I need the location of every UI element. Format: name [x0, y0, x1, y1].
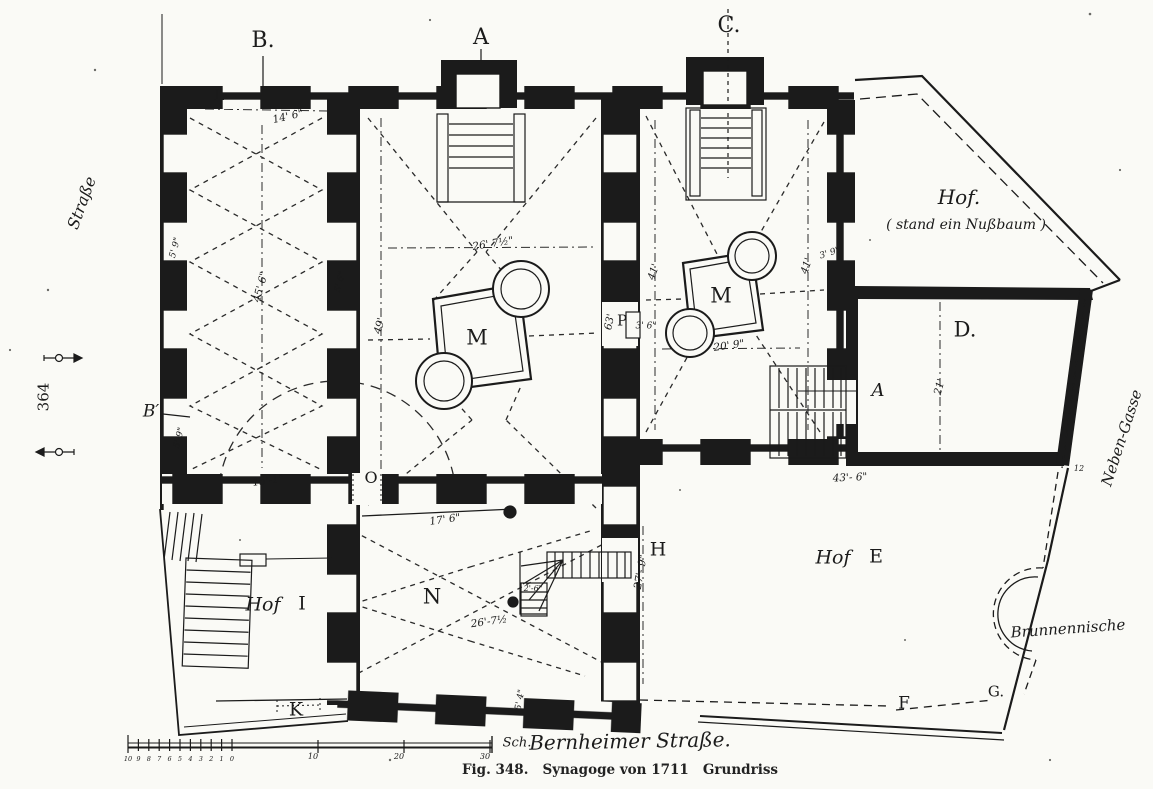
- scale-tick-label: 30: [480, 752, 490, 761]
- room-d-walls: [846, 286, 1093, 466]
- central-wall: [601, 95, 640, 720]
- scanned-book-page: 109876543210102030 B.AC.LONMMD.HKFG.PB′H…: [0, 0, 1153, 789]
- scale-tick-label: 10: [308, 752, 318, 761]
- staircases: [164, 108, 846, 668]
- west-wall: [160, 86, 187, 510]
- scale-tick-label: 2: [208, 755, 213, 763]
- stair-c: [686, 108, 766, 200]
- bimah-structures: [416, 232, 776, 409]
- bimah-right: [666, 232, 776, 357]
- scale-tick-label: 9: [136, 755, 140, 763]
- scale-tick-label: 10: [124, 755, 132, 763]
- street-wall: [337, 690, 642, 733]
- figure-caption: Fig. 348. Synagoge von 1711 Grundriss: [462, 762, 778, 778]
- scale-tick-label: 0: [230, 755, 234, 763]
- entrance-a: [441, 60, 517, 108]
- scale-bar: 109876543210102030: [124, 735, 492, 763]
- bimah-main: [416, 261, 549, 409]
- scale-tick-label: 5: [178, 755, 182, 763]
- margin-marks: [36, 354, 82, 456]
- entrance-c: [686, 57, 764, 105]
- stair-hof-i: [164, 512, 266, 668]
- scale-tick-label: 7: [157, 755, 162, 763]
- east-hall-south-wall: [640, 439, 855, 465]
- scale-tick-label: 3: [199, 755, 203, 763]
- masonry-walls: [160, 57, 1093, 733]
- scale-tick-label: 1: [220, 755, 224, 763]
- scale-tick-label: 20: [393, 752, 404, 761]
- scale-tick-label: 8: [147, 755, 151, 763]
- scale-tick-label: 6: [168, 755, 172, 763]
- well-niche-outer-arc: [993, 568, 1043, 660]
- well-niche-inner-arc: [998, 577, 1038, 651]
- stair-a: [437, 114, 525, 202]
- floor-plan-drawing: 109876543210102030: [0, 0, 1153, 789]
- scale-tick-label: 4: [187, 755, 192, 763]
- door-openings: [277, 302, 856, 713]
- west-inner-wall: [327, 95, 360, 705]
- scale-ticks: 109876543210102030: [124, 735, 490, 763]
